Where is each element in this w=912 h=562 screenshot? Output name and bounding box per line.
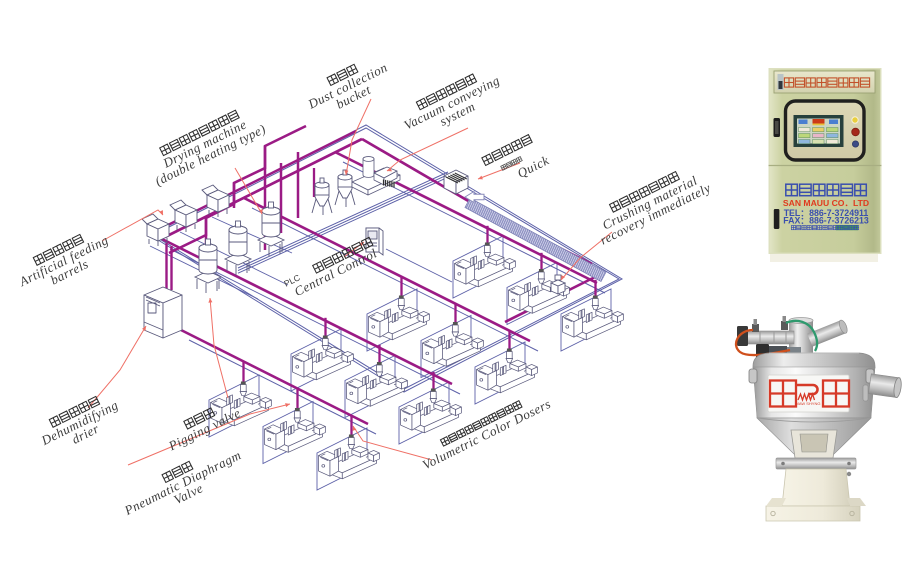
svg-text:SAN MAUU CO．LTD: SAN MAUU CO．LTD (783, 198, 869, 208)
svg-text:MAW SHYNG: MAW SHYNG (796, 401, 821, 406)
svg-text:FAX：886-7-3726213: FAX：886-7-3726213 (783, 216, 869, 226)
